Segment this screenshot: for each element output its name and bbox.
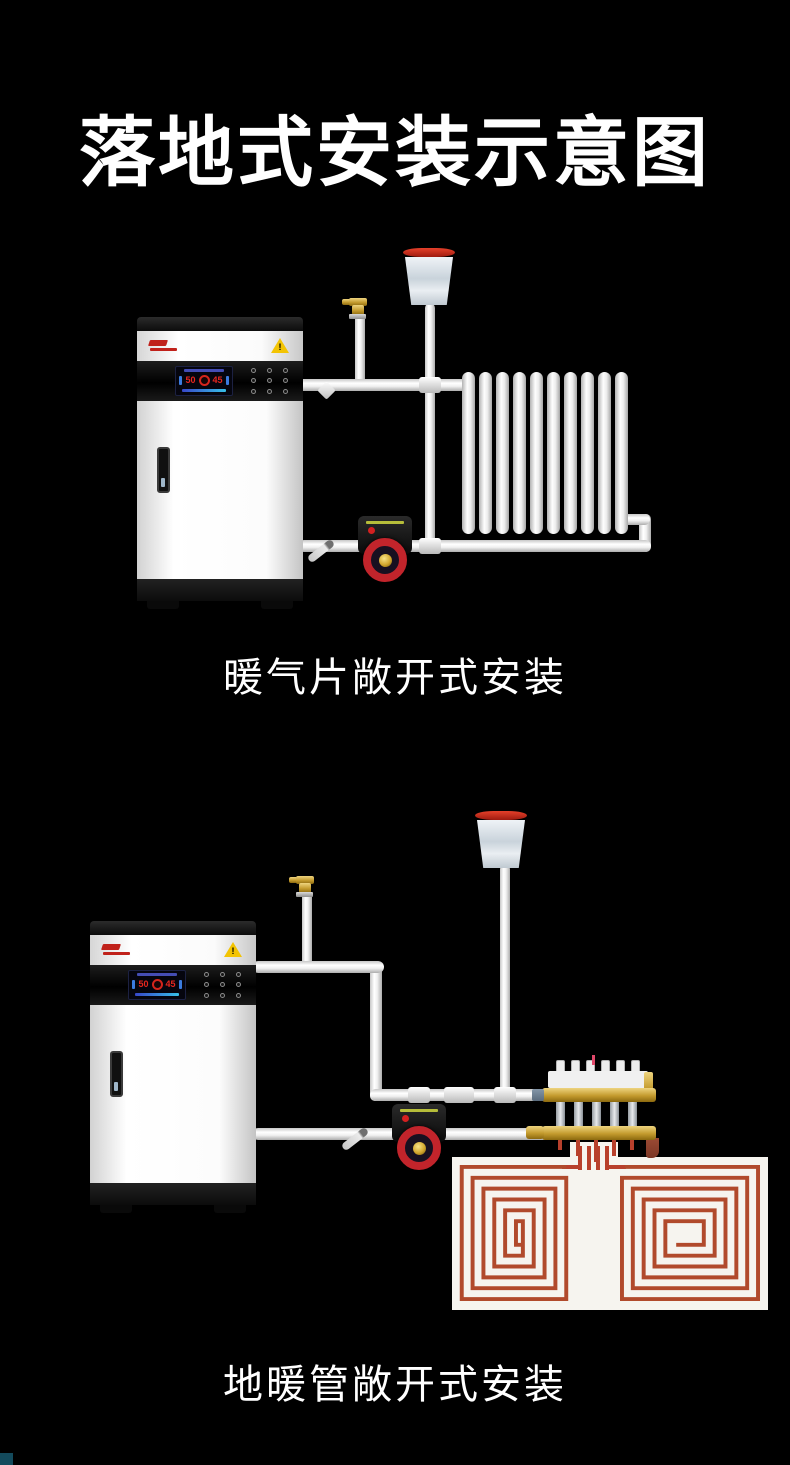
manifold-bottom-bar (542, 1126, 656, 1140)
boiler-base (90, 1183, 256, 1205)
display-temp-right: 45 (166, 979, 176, 990)
brand-logo-icon (102, 944, 132, 955)
manifold-connector (628, 1100, 637, 1128)
boiler-foot (100, 1205, 132, 1213)
radiator-column (581, 372, 594, 534)
supply-pipe-upper (252, 961, 384, 973)
pump-hub (413, 1142, 426, 1155)
manifold-right-elbow (646, 1138, 659, 1158)
manifold-connector (556, 1100, 565, 1128)
pump-hub (379, 554, 392, 567)
pipe-tee-collar (494, 1087, 516, 1103)
display-temp-right: 45 (213, 375, 223, 386)
air-vent-riser-pipe (355, 312, 365, 386)
boiler-door (137, 401, 303, 579)
brand-logo-icon (149, 340, 179, 351)
boiler-control-panel: 50 45 (137, 361, 303, 401)
display-temp-left: 50 (185, 375, 195, 386)
next-section-sliver (0, 1453, 13, 1465)
manifold-connector (610, 1100, 619, 1128)
boiler-control-panel: 50 45 (90, 965, 256, 1005)
manifold-top-bar (542, 1088, 656, 1102)
boiler-header-strip: ! (90, 935, 256, 965)
door-handle (157, 447, 170, 493)
pipe-coupling (408, 1087, 430, 1103)
pump-indicator-dot (402, 1115, 409, 1122)
expansion-tank (405, 257, 453, 305)
expansion-tank-riser-pipe (425, 303, 435, 548)
floor-coil-right (618, 1163, 762, 1303)
manifold-left-drain-valve (526, 1126, 544, 1139)
air-vent-riser-pipe (302, 890, 312, 970)
radiator-column (615, 372, 628, 534)
pex-feed-line (596, 1146, 600, 1170)
boiler-door (90, 1005, 256, 1183)
radiator-column (513, 372, 526, 534)
poster-canvas: 落地式安装示意图 (0, 0, 790, 1465)
boiler-unit: ! 50 45 (137, 317, 303, 609)
boiler-foot (147, 601, 179, 609)
boiler-top-cap (137, 317, 303, 331)
radiator-column (547, 372, 560, 534)
radiator-column (530, 372, 543, 534)
radiator-column (496, 372, 509, 534)
expansion-tank (477, 820, 525, 868)
pump-indicator-dot (368, 527, 375, 534)
radiator (462, 372, 628, 534)
display-temp-left: 50 (138, 979, 148, 990)
pipe-coupling (444, 1087, 474, 1103)
boiler-base (137, 579, 303, 601)
manifold-connector (592, 1100, 601, 1128)
air-vent-valve-nut (296, 892, 313, 897)
boiler-foot (261, 601, 293, 609)
boiler-display-screen: 50 45 (175, 366, 233, 396)
floor-coil-left (458, 1163, 570, 1303)
expansion-tank-rim (475, 811, 527, 820)
pump-label-stripe (400, 1109, 438, 1112)
control-buttons (247, 367, 291, 395)
radiator-column (462, 372, 475, 534)
manifold-connector (574, 1100, 583, 1128)
display-mode-icon (132, 980, 135, 989)
return-pipe (298, 540, 651, 552)
boiler-foot (214, 1205, 246, 1213)
expansion-tank-rim (403, 248, 455, 257)
warning-icon: ! (224, 942, 242, 957)
boiler-display-screen: 50 45 (128, 970, 186, 1000)
display-mode-icon (179, 980, 182, 989)
boiler-header-strip: ! (137, 331, 303, 361)
radiator-column (598, 372, 611, 534)
display-progress-bar (182, 389, 226, 392)
pipe-tee-collar (419, 538, 441, 554)
door-handle (110, 1051, 123, 1097)
boiler-unit: ! 50 45 (90, 921, 256, 1213)
radiator-column (479, 372, 492, 534)
warning-icon: ! (271, 338, 289, 353)
pipe-tee-collar (419, 377, 441, 393)
diagram2-caption: 地暖管敞开式安装 (0, 1352, 790, 1410)
air-vent-valve-nut (349, 314, 366, 319)
pump-label-stripe (366, 521, 404, 524)
manifold-red-indicator (592, 1055, 595, 1065)
expansion-tank-riser-pipe (500, 864, 510, 1102)
manifold-top-rail (548, 1071, 648, 1088)
display-date-bar (137, 973, 177, 976)
manifold-left-valve (532, 1089, 544, 1101)
supply-downpipe (370, 961, 382, 1101)
display-mode-icon (226, 376, 229, 385)
radiator-column (564, 372, 577, 534)
diagram1-caption: 暖气片敞开式安装 (0, 645, 790, 703)
control-buttons (200, 971, 244, 999)
display-dial-icon (199, 375, 210, 386)
pex-feed-line (587, 1146, 591, 1170)
display-dial-icon (152, 979, 163, 990)
page-title: 落地式安装示意图 (0, 112, 790, 196)
display-date-bar (184, 369, 224, 372)
display-mode-icon (179, 376, 182, 385)
boiler-top-cap (90, 921, 256, 935)
display-progress-bar (135, 993, 179, 996)
